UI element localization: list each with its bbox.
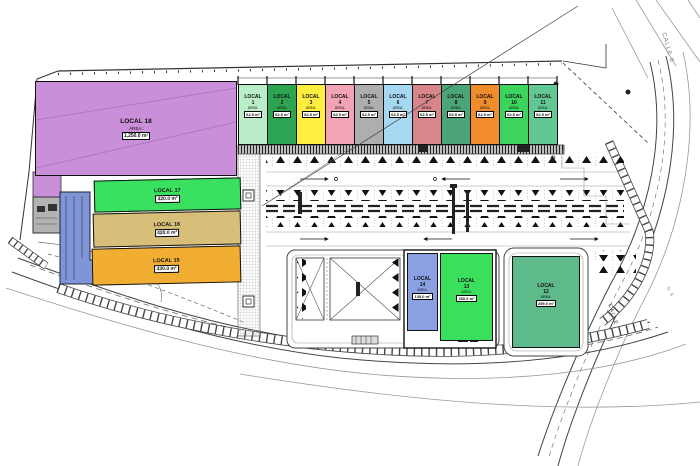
unit-area-value: 62.5 m² xyxy=(360,111,378,118)
unit-area-value: 62.5 m² xyxy=(273,111,291,118)
unit-local-15: LOCAL 15 430.0 m² xyxy=(92,245,242,285)
unit-local-9: LOCAL9ÁREA:62.5 m² xyxy=(470,84,500,145)
unit-area-value: 260.0 m² xyxy=(456,295,476,302)
unit-local-10: LOCAL10ÁREA:62.5 m² xyxy=(499,84,529,145)
unit-local-16: LOCAL 16 420.0 m² xyxy=(93,210,242,247)
unit-area-value: 62.5 m² xyxy=(389,111,407,118)
unit-label: LOCAL 18 xyxy=(120,118,151,126)
unit-local-11: LOCAL11ÁREA:62.5 m² xyxy=(528,84,558,145)
unit-local-3: LOCAL3ÁREA:62.5 m² xyxy=(296,84,326,145)
unit-local-4: LOCAL4ÁREA:62.5 m² xyxy=(325,84,355,145)
unit-area-value: 420.0 m² xyxy=(155,194,179,203)
unit-area-value: 62.5 m² xyxy=(476,111,494,118)
unit-area-value: 420.0 m² xyxy=(155,228,179,237)
unit-area-value: 62.5 m² xyxy=(505,111,523,118)
unit-local-14: LOCAL 14 ÁREA: 135.0 m² xyxy=(407,253,438,331)
unit-local-8: LOCAL8ÁREA:62.5 m² xyxy=(441,84,471,145)
unit-area-value: 1,250.0 m² xyxy=(122,132,150,140)
unit-local-5: LOCAL5ÁREA:62.5 m² xyxy=(354,84,384,145)
unit-local-12: LOCAL 12 ÁREA: 255.0 m² xyxy=(512,256,580,348)
unit-area-value: 255.0 m² xyxy=(536,300,556,307)
unit-area-value: 430.0 m² xyxy=(154,265,178,274)
unit-local-17: LOCAL 17 420.0 m² xyxy=(94,177,242,212)
unit-area-value: 62.5 m² xyxy=(244,111,262,118)
right-road xyxy=(538,0,700,466)
unit-area-value: 135.0 m² xyxy=(412,293,432,300)
unit-area-value: 62.5 m² xyxy=(534,111,552,118)
unit-area-value: 62.5 m² xyxy=(418,111,436,118)
unit-area-value: 62.5 m² xyxy=(447,111,465,118)
unit-local-2: LOCAL2ÁREA:62.5 m² xyxy=(267,84,297,145)
unit-area-value: 62.5 m² xyxy=(302,111,320,118)
unit-area-value: 62.5 m² xyxy=(331,111,349,118)
unit-local-13: LOCAL 13 ÁREA: 260.0 m² xyxy=(440,253,493,341)
unit-local-1: LOCAL1ÁREA:62.5 m² xyxy=(238,84,268,145)
unit-local-6: LOCAL6ÁREA:62.5 m² xyxy=(383,84,413,145)
site-plan: LOCAL1ÁREA:62.5 m² LOCAL2ÁREA:62.5 m² LO… xyxy=(0,0,700,466)
unit-local-18: LOCAL 18 ÁREA: 1,250.0 m² xyxy=(35,81,237,176)
unit-local-7: LOCAL7ÁREA:62.5 m² xyxy=(412,84,442,145)
